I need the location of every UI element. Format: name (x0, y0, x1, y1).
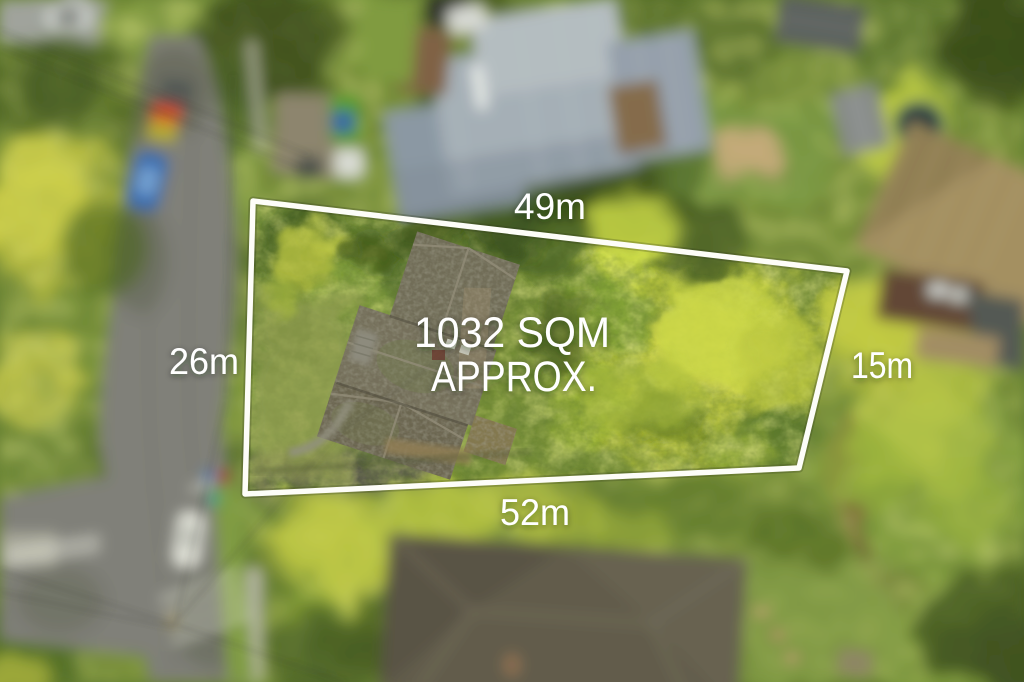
svg-text:49m: 49m (514, 186, 586, 227)
svg-text:1032 SQM: 1032 SQM (414, 310, 610, 357)
svg-text:52m: 52m (500, 492, 570, 533)
svg-text:26m: 26m (169, 341, 239, 382)
svg-text:APPROX.: APPROX. (431, 354, 597, 401)
svg-text:15m: 15m (851, 345, 913, 386)
